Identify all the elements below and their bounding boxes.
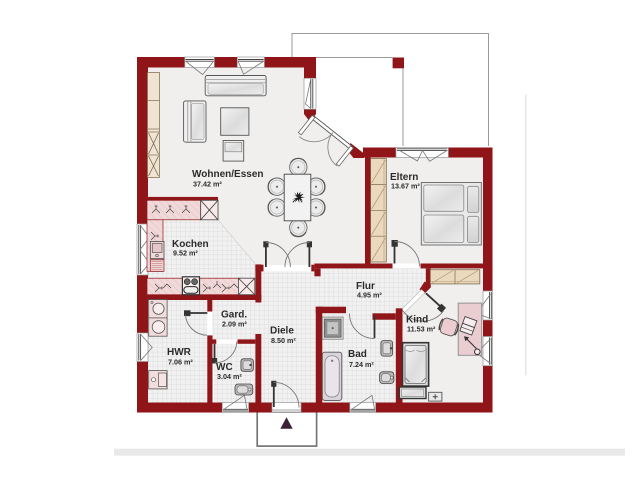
svg-text:37.42 m²: 37.42 m² [193,180,222,189]
svg-text:13.67 m²: 13.67 m² [391,182,420,191]
svg-text:11.53 m²: 11.53 m² [407,325,436,334]
svg-text:Bad: Bad [348,349,367,360]
svg-text:8.50 m²: 8.50 m² [271,336,296,345]
svg-text:Wohnen/Essen: Wohnen/Essen [192,169,264,180]
svg-text:3.04 m²: 3.04 m² [217,372,242,381]
svg-text:HWR: HWR [167,347,192,358]
svg-text:7.24 m²: 7.24 m² [349,360,374,369]
svg-text:2.09 m²: 2.09 m² [222,320,247,329]
svg-text:Diele: Diele [270,326,294,337]
svg-text:9.52 m²: 9.52 m² [173,249,198,258]
svg-text:7.06 m²: 7.06 m² [168,358,193,367]
svg-text:4.95 m²: 4.95 m² [357,291,382,300]
